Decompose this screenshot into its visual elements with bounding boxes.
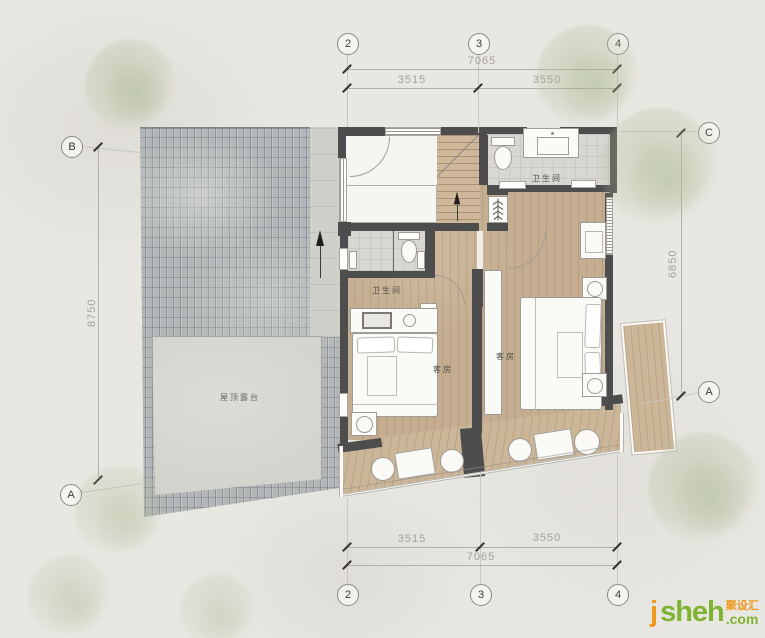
dim-label-top-overall: 7065 xyxy=(452,55,512,67)
floor-plan-canvas: 屋顶露台 xyxy=(0,0,765,638)
wall-segment xyxy=(425,231,435,278)
tree xyxy=(28,555,112,638)
dim-label-left-overall: 8750 xyxy=(86,283,98,343)
faucet-icon xyxy=(551,132,554,135)
dim-label-bottom-right: 3550 xyxy=(517,532,577,544)
pillow xyxy=(584,304,602,349)
balcony-stool xyxy=(371,457,395,481)
wall-segment xyxy=(348,223,435,231)
wall-segment xyxy=(487,127,527,134)
desk xyxy=(580,222,606,259)
north-arrow-icon xyxy=(316,230,324,246)
roof-terrace xyxy=(152,336,322,496)
tree xyxy=(536,25,640,129)
guest-bed xyxy=(352,333,438,417)
roof-concrete-strip xyxy=(310,127,340,337)
roof-area xyxy=(138,126,342,518)
pillow xyxy=(397,336,434,353)
tree xyxy=(85,40,177,132)
wall-segment xyxy=(487,223,508,231)
stair-arrow-stem xyxy=(457,205,458,221)
dimension-line xyxy=(98,147,99,480)
window xyxy=(385,127,441,136)
closet xyxy=(343,185,437,223)
shower-fixture xyxy=(349,251,357,269)
watermark-j: j xyxy=(650,596,658,629)
wall-segment xyxy=(472,269,483,307)
duvet-fold xyxy=(557,332,583,378)
watermark-com: .com xyxy=(726,612,759,626)
dimension-line xyxy=(347,565,617,566)
guest-room-left-label: 客房 xyxy=(413,364,473,375)
extension-line xyxy=(480,474,481,584)
grid-bubble-col-4-bottom: 4 xyxy=(607,584,629,606)
north-arrow-stem xyxy=(320,246,321,278)
tree xyxy=(600,108,720,228)
plant-icon xyxy=(488,196,508,223)
window xyxy=(339,158,347,222)
wall-segment xyxy=(338,135,346,158)
wall-segment xyxy=(441,127,487,135)
grid-bubble-col-2-top: 2 xyxy=(337,33,359,55)
shower-fixture xyxy=(417,251,425,269)
tree xyxy=(74,466,166,558)
wall-segment xyxy=(472,307,482,433)
bedside-lamp-icon xyxy=(587,378,603,394)
wall-segment xyxy=(435,223,479,231)
dim-label-bottom-left: 3515 xyxy=(382,533,442,545)
sink-counter xyxy=(523,128,579,158)
basin-icon xyxy=(537,137,569,155)
dim-label-bottom-overall: 7065 xyxy=(451,551,511,563)
watermark-side: 聚设汇 .com xyxy=(726,601,759,629)
stair-direction-arrow-icon xyxy=(454,192,460,205)
window xyxy=(339,248,348,270)
watermark-sheh: sheh xyxy=(660,596,724,629)
wall-segment xyxy=(348,271,435,278)
window xyxy=(606,197,613,255)
grid-bubble-row-a-right: A xyxy=(698,381,720,403)
bedside-lamp-icon xyxy=(356,416,373,433)
tree xyxy=(648,433,760,545)
dimension-line xyxy=(347,547,617,548)
dim-label-top-left: 3515 xyxy=(382,74,442,86)
wall-segment xyxy=(479,135,488,185)
extension-line xyxy=(347,498,348,584)
nightstand xyxy=(351,412,377,436)
extension-line xyxy=(347,53,348,127)
window xyxy=(339,393,348,417)
tv-icon xyxy=(362,312,392,329)
toilet-icon xyxy=(491,137,515,171)
roof-terrace-label: 屋顶露台 xyxy=(205,392,275,403)
grid-bubble-col-3-bottom: 3 xyxy=(470,584,492,606)
shower-partition xyxy=(393,231,394,271)
staircase xyxy=(437,135,480,223)
balcony-railing-left xyxy=(339,446,343,497)
watermark-logo[interactable]: jsheh 聚设汇 .com xyxy=(650,596,759,629)
grid-bubble-col-2-bottom: 2 xyxy=(337,584,359,606)
bathroom-top-label: 卫生间 xyxy=(517,173,577,184)
pillow xyxy=(357,336,396,353)
dim-label-right-overall: 6850 xyxy=(667,234,679,294)
grid-bubble-row-b: B xyxy=(61,136,83,158)
wardrobe-panel xyxy=(484,270,502,415)
nightstand xyxy=(582,373,607,397)
duvet-fold xyxy=(367,356,397,396)
basin-icon xyxy=(403,314,416,327)
bathroom-left-label: 卫生间 xyxy=(357,285,417,296)
bedside-lamp-icon xyxy=(587,281,603,297)
grid-bubble-col-3-top: 3 xyxy=(468,33,490,55)
door-opening xyxy=(477,231,483,269)
balcony-railing-right xyxy=(620,413,624,452)
blanket-line xyxy=(353,404,439,405)
guest-room-right-label: 客房 xyxy=(476,351,536,362)
